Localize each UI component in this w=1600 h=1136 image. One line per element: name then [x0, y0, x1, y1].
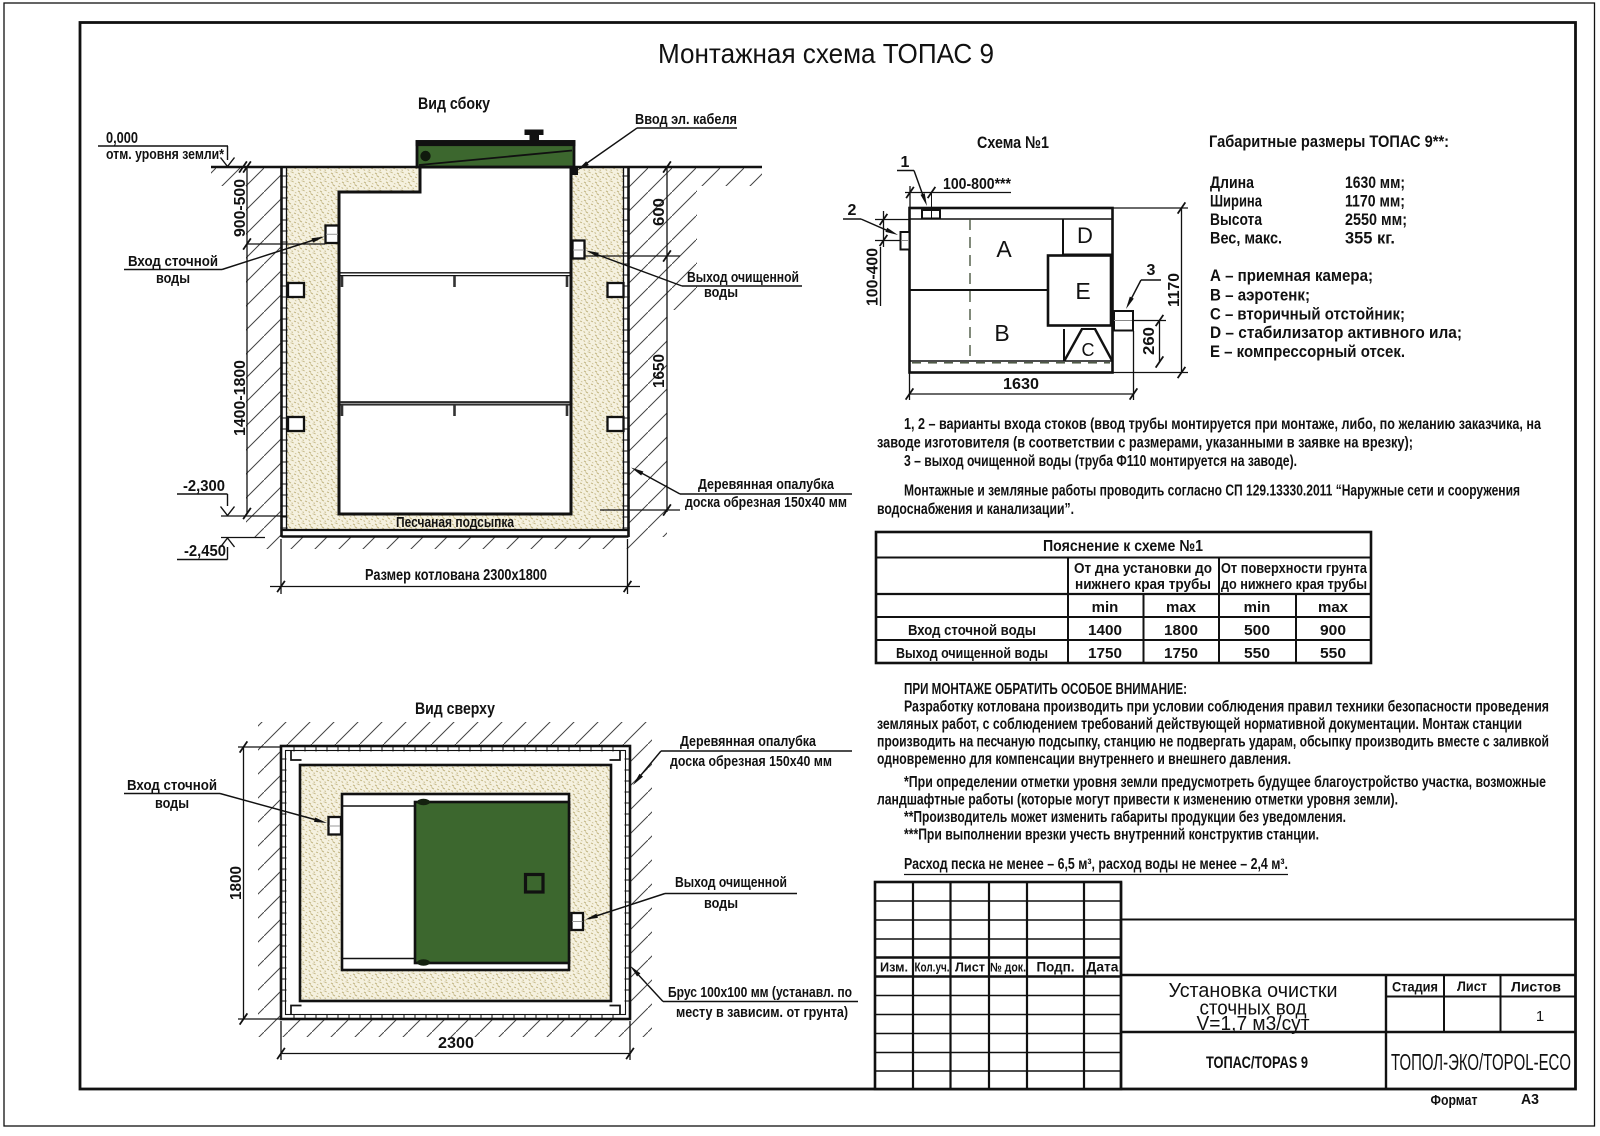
svg-text:100-800***: 100-800***	[943, 176, 1012, 193]
svg-text:*При определении отметки уровн: *При определении отметки уровня земли пр…	[904, 774, 1546, 791]
svg-text:550: 550	[1244, 645, 1270, 662]
svg-text:***При выполнении врезки учест: ***При выполнении врезки учесть внутренн…	[904, 827, 1319, 844]
svg-text:1400-1800: 1400-1800	[232, 360, 249, 436]
svg-text:Пояснение к схеме №1: Пояснение к схеме №1	[1043, 538, 1203, 555]
svg-text:Монтажные и земляные работы пр: Монтажные и земляные работы проводить со…	[904, 483, 1520, 500]
svg-text:Выход очищенной воды: Выход очищенной воды	[896, 645, 1048, 662]
svg-text:воды: воды	[704, 284, 738, 301]
svg-text:Габаритные размеры ТОПАС 9**:: Габаритные размеры ТОПАС 9**:	[1209, 132, 1449, 151]
svg-text:2550 мм;: 2550 мм;	[1345, 211, 1407, 229]
svg-text:Изм.: Изм.	[880, 961, 908, 975]
svg-text:земляных работ, с соблюдением: земляных работ, с соблюдением требований…	[877, 716, 1522, 733]
svg-text:2: 2	[848, 202, 857, 219]
svg-text:Вход сточной: Вход сточной	[127, 777, 217, 794]
svg-text:550: 550	[1320, 645, 1346, 662]
svg-text:Подп.: Подп.	[1037, 960, 1075, 975]
svg-text:min: min	[1244, 599, 1271, 616]
svg-text:доска обрезная 150х40 мм: доска обрезная 150х40 мм	[670, 753, 832, 770]
svg-text:ТОПАС/TOPAS 9: ТОПАС/TOPAS 9	[1206, 1054, 1308, 1072]
svg-text:Размер котлована 2300х1800: Размер котлована 2300х1800	[365, 567, 547, 584]
svg-text:0,000: 0,000	[106, 130, 138, 147]
svg-text:Дата: Дата	[1087, 960, 1119, 975]
svg-text:ландшафтные работы (которые мо: ландшафтные работы (которые могут привес…	[877, 792, 1398, 809]
svg-text:-2,300: -2,300	[183, 478, 225, 495]
svg-text:1: 1	[1536, 1008, 1544, 1025]
svg-text:ТОПОЛ-ЭКО/TOPOL-ECO: ТОПОЛ-ЭКО/TOPOL-ECO	[1391, 1049, 1571, 1075]
svg-text:D – стабилизатор активного ила: D – стабилизатор активного ила;	[1210, 324, 1462, 342]
svg-text:Лист: Лист	[1457, 979, 1487, 994]
svg-text:900: 900	[1320, 622, 1346, 639]
svg-text:заводе изготовителя (в соответ: заводе изготовителя (в соответствии с ра…	[877, 435, 1413, 452]
svg-text:Вход сточной воды: Вход сточной воды	[908, 622, 1036, 639]
svg-text:№ док.: № док.	[990, 961, 1026, 975]
svg-text:От поверхности грунта: От поверхности грунта	[1221, 561, 1368, 577]
svg-text:Лист: Лист	[955, 961, 985, 975]
svg-text:Выход очищенной: Выход очищенной	[675, 874, 787, 891]
svg-text:Е – компрессорный отсек.: Е – компрессорный отсек.	[1210, 343, 1405, 361]
svg-text:доска обрезная 150х40 мм: доска обрезная 150х40 мм	[685, 494, 847, 511]
svg-text:до нижнего края трубы: до нижнего края трубы	[1221, 577, 1367, 593]
svg-text:одновременно для компенсации в: одновременно для компенсации внутреннего…	[877, 751, 1291, 768]
svg-text:Стадия: Стадия	[1392, 980, 1438, 995]
svg-text:1750: 1750	[1164, 645, 1198, 662]
svg-text:воды: воды	[155, 795, 189, 812]
svg-text:1650: 1650	[651, 354, 668, 388]
svg-text:Е: Е	[1075, 278, 1090, 304]
svg-text:500: 500	[1244, 622, 1270, 639]
svg-text:900-500: 900-500	[232, 179, 249, 237]
svg-text:600: 600	[651, 198, 668, 226]
svg-text:1, 2 – варианты входа стоков: 1, 2 – варианты входа стоков (ввод трубы…	[904, 416, 1541, 433]
svg-text:В – аэротенк;: В – аэротенк;	[1210, 287, 1310, 305]
svg-text:Песчаная подсыпка: Песчаная подсыпка	[396, 514, 515, 531]
svg-text:3 – выход очищенной воды (труб: 3 – выход очищенной воды (труба Ф110 мон…	[904, 453, 1297, 470]
svg-text:Схема №1: Схема №1	[977, 133, 1049, 152]
svg-text:Монтажная схема ТОПАС 9: Монтажная схема ТОПАС 9	[658, 38, 994, 69]
svg-text:А – приемная камера;: А – приемная камера;	[1210, 267, 1373, 285]
svg-text:Вес, макс.: Вес, макс.	[1210, 230, 1282, 248]
svg-text:воды: воды	[156, 270, 190, 287]
svg-text:1630: 1630	[1003, 376, 1039, 393]
svg-text:С: С	[1082, 340, 1095, 360]
svg-text:водоснабжения и канализации”.: водоснабжения и канализации”.	[877, 501, 1074, 518]
svg-text:Высота: Высота	[1210, 211, 1263, 229]
svg-text:2300: 2300	[438, 1035, 474, 1052]
svg-text:Вид сверху: Вид сверху	[415, 699, 495, 718]
svg-text:В: В	[994, 320, 1009, 346]
svg-text:1800: 1800	[228, 866, 245, 900]
svg-text:Листов: Листов	[1511, 980, 1561, 995]
svg-text:V=1,7 м3/сут: V=1,7 м3/сут	[1197, 1012, 1311, 1035]
svg-text:D: D	[1077, 223, 1093, 248]
svg-text:Ввод эл. кабеля: Ввод эл. кабеля	[635, 111, 737, 128]
svg-text:Длина: Длина	[1210, 174, 1255, 192]
svg-text:Расход песка не менее – 6,5 м³: Расход песка не менее – 6,5 м³, расход в…	[904, 856, 1288, 873]
svg-text:Вид сбоку: Вид сбоку	[418, 94, 490, 113]
svg-text:Вход сточной: Вход сточной	[128, 253, 218, 270]
svg-text:Кол.уч.: Кол.уч.	[915, 961, 950, 975]
svg-text:max: max	[1318, 599, 1349, 616]
svg-text:**Производитель может изменить: **Производитель может изменить габариты …	[904, 809, 1346, 826]
svg-text:1170 мм;: 1170 мм;	[1345, 193, 1405, 211]
svg-text:355 кг.: 355 кг.	[1345, 230, 1395, 248]
svg-text:-2,450: -2,450	[184, 543, 226, 560]
svg-text:100-400: 100-400	[865, 248, 882, 306]
svg-text:260: 260	[1141, 327, 1158, 355]
svg-text:А3: А3	[1521, 1092, 1539, 1108]
svg-text:производить на песчаную подсып: производить на песчаную подсыпку, станци…	[877, 734, 1549, 751]
svg-text:1400: 1400	[1088, 622, 1122, 639]
svg-text:отм. уровня земли*: отм. уровня земли*	[106, 147, 224, 163]
svg-text:Деревянная опалубка: Деревянная опалубка	[680, 733, 817, 750]
svg-text:1750: 1750	[1088, 645, 1122, 662]
svg-text:1170: 1170	[1166, 273, 1183, 307]
svg-text:max: max	[1166, 599, 1197, 616]
svg-text:нижнего края трубы: нижнего края трубы	[1075, 577, 1211, 593]
svg-text:Формат: Формат	[1431, 1093, 1478, 1109]
svg-text:От дна установки до: От дна установки до	[1074, 561, 1212, 577]
svg-text:min: min	[1092, 599, 1119, 616]
svg-text:С – вторичный отстойник;: С – вторичный отстойник;	[1210, 306, 1405, 324]
svg-text:месту в зависим. от грунта): месту в зависим. от грунта)	[676, 1004, 848, 1021]
svg-text:1630 мм;: 1630 мм;	[1345, 174, 1405, 192]
svg-text:А: А	[996, 236, 1012, 262]
svg-text:Деревянная опалубка: Деревянная опалубка	[698, 476, 835, 493]
svg-text:1800: 1800	[1164, 622, 1198, 639]
svg-text:воды: воды	[704, 895, 738, 912]
svg-text:Разработку котлована производи: Разработку котлована производить при усл…	[904, 699, 1549, 716]
svg-text:Брус 100х100 мм (устанавл. по: Брус 100х100 мм (устанавл. по	[668, 984, 852, 1001]
svg-text:1: 1	[901, 154, 910, 171]
svg-text:Ширина: Ширина	[1210, 193, 1263, 211]
svg-text:ПРИ МОНТАЖЕ ОБРАТИТЬ ОСОБОЕ ВН: ПРИ МОНТАЖЕ ОБРАТИТЬ ОСОБОЕ ВНИМАНИЕ:	[904, 681, 1187, 698]
svg-text:3: 3	[1147, 262, 1156, 279]
